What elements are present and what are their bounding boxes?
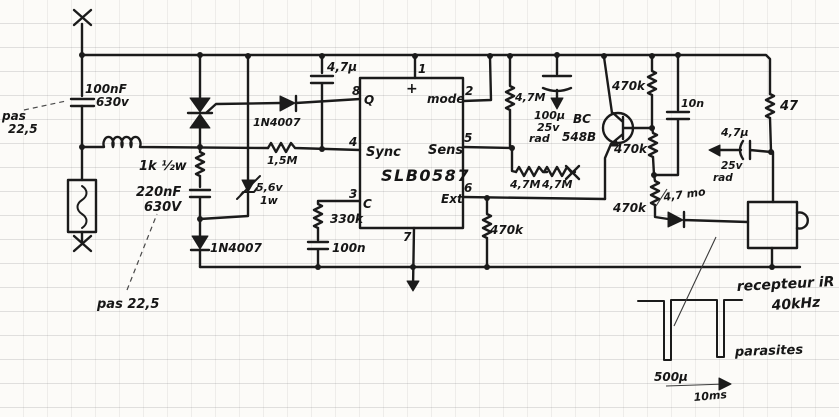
label-diode-bottom: 1N4007 xyxy=(210,241,262,255)
label-res-47: 47 xyxy=(779,99,799,114)
capacitor-10n xyxy=(654,55,689,175)
inductor-coil xyxy=(82,137,268,148)
ir-receiver-box xyxy=(748,152,808,267)
capacitor-100u xyxy=(543,55,571,109)
label-receiver-2: 40kHz xyxy=(770,295,822,314)
label-wave-pulse-width: 500µ xyxy=(654,370,688,384)
leader-waveform xyxy=(674,237,716,326)
label-pitch-bottom: pas 22,5 xyxy=(96,297,159,312)
capacitor-4u7-right xyxy=(709,141,771,159)
label-zener-watt: 1w xyxy=(260,194,279,207)
label-cap-100n-small: 100n xyxy=(332,241,366,255)
label-res-1k: 1k ½w xyxy=(139,159,188,174)
label-res-4m7-vert: 4,7M xyxy=(514,91,545,104)
label-cap-220nf: 220nF xyxy=(136,185,181,200)
resistor-1k xyxy=(196,147,204,187)
label-pin4: 4 xyxy=(348,135,357,149)
label-transistor-2: 548B xyxy=(562,130,596,144)
label-pitch-top-2: 22,5 xyxy=(8,122,38,136)
label-ic-mode: mode xyxy=(427,92,464,106)
label-res-4m7-b: 4,7M xyxy=(541,178,572,191)
label-pin5: 5 xyxy=(464,131,472,145)
diode-1n4007-top xyxy=(280,96,360,111)
wire-sens xyxy=(463,147,516,172)
leader-pitch-top xyxy=(24,101,66,110)
label-pitch-top-1: pas xyxy=(1,109,26,123)
resistor-1m5 xyxy=(268,143,360,152)
label-zener-volt: 5,6v xyxy=(256,181,283,194)
label-transistor-1: BC xyxy=(573,112,591,126)
label-cap-100nf: 100nF xyxy=(85,82,128,96)
resistor-470k-mid xyxy=(649,128,657,175)
label-pin1: 1 xyxy=(418,62,426,76)
label-pin8: 8 xyxy=(352,84,360,98)
diode-1n4007-bottom xyxy=(191,219,209,267)
label-ic-name: SLB0587 xyxy=(381,166,470,185)
label-pin3: 3 xyxy=(349,187,357,201)
label-res-470k-ext: 470k xyxy=(489,223,524,237)
notebook-paper: pas 22,5 100nF 630v 1k ½w 220nF 630V pas… xyxy=(0,0,839,417)
label-ic-sens: Sens xyxy=(428,143,463,158)
label-diode-ir-note: 4,7 mo xyxy=(662,185,707,204)
label-wave-period: 10ms xyxy=(693,388,728,404)
label-res-1m5: 1,5M xyxy=(267,154,297,167)
leader-pitch-bottom xyxy=(127,214,157,290)
label-diode-top: 1N4007 xyxy=(253,116,301,129)
label-parasites: parasites xyxy=(734,343,804,360)
resistor-4m7-vertical xyxy=(506,57,514,148)
label-pin7: 7 xyxy=(403,230,412,244)
label-receiver-1: recepteur iR xyxy=(736,274,834,295)
label-res-4m7-a: 4,7M xyxy=(509,178,540,191)
label-ic-c: C xyxy=(363,197,372,211)
label-cap-4u7-left: 4,7µ xyxy=(326,60,357,74)
label-res-470k-mid: 470k xyxy=(613,142,648,156)
resistor-47 xyxy=(766,94,774,151)
label-cap-100u-type: rad xyxy=(529,132,550,145)
label-ic-sync: Sync xyxy=(366,145,401,160)
label-res-470k-top: 470k xyxy=(611,79,646,93)
resistor-470k-top xyxy=(648,57,656,128)
capacitor-100nf xyxy=(71,99,94,106)
label-cap-100nf-volt: 630v xyxy=(96,95,130,109)
label-pin2: 2 xyxy=(465,84,473,98)
capacitor-100n xyxy=(308,242,328,267)
label-cap-10n: 10n xyxy=(681,97,704,110)
label-cap-220nf-volt: 630V xyxy=(144,200,182,215)
lamp-load-symbol xyxy=(68,180,96,232)
capacitor-220nf xyxy=(190,190,210,219)
label-cap-4u7-right-type: rad xyxy=(713,172,733,184)
label-res-330k: 330k xyxy=(330,212,364,226)
mains-terminal-top-icon xyxy=(74,10,91,25)
label-ic-q: Q xyxy=(364,93,374,107)
diode-ir-line xyxy=(668,212,748,227)
label-res-470k-low: 470k xyxy=(612,201,647,215)
resistor-4m7-a xyxy=(516,167,547,176)
schematic-drawing: pas 22,5 100nF 630v 1k ½w 220nF 630V pas… xyxy=(0,0,839,417)
label-cap-4u7-right-volt: 25v xyxy=(721,160,744,172)
label-cap-4u7-right: 4,7µ xyxy=(720,126,749,139)
label-pin6: 6 xyxy=(464,181,472,195)
label-ic-plus: + xyxy=(406,81,418,97)
label-ic-ext: Ext xyxy=(441,192,464,206)
